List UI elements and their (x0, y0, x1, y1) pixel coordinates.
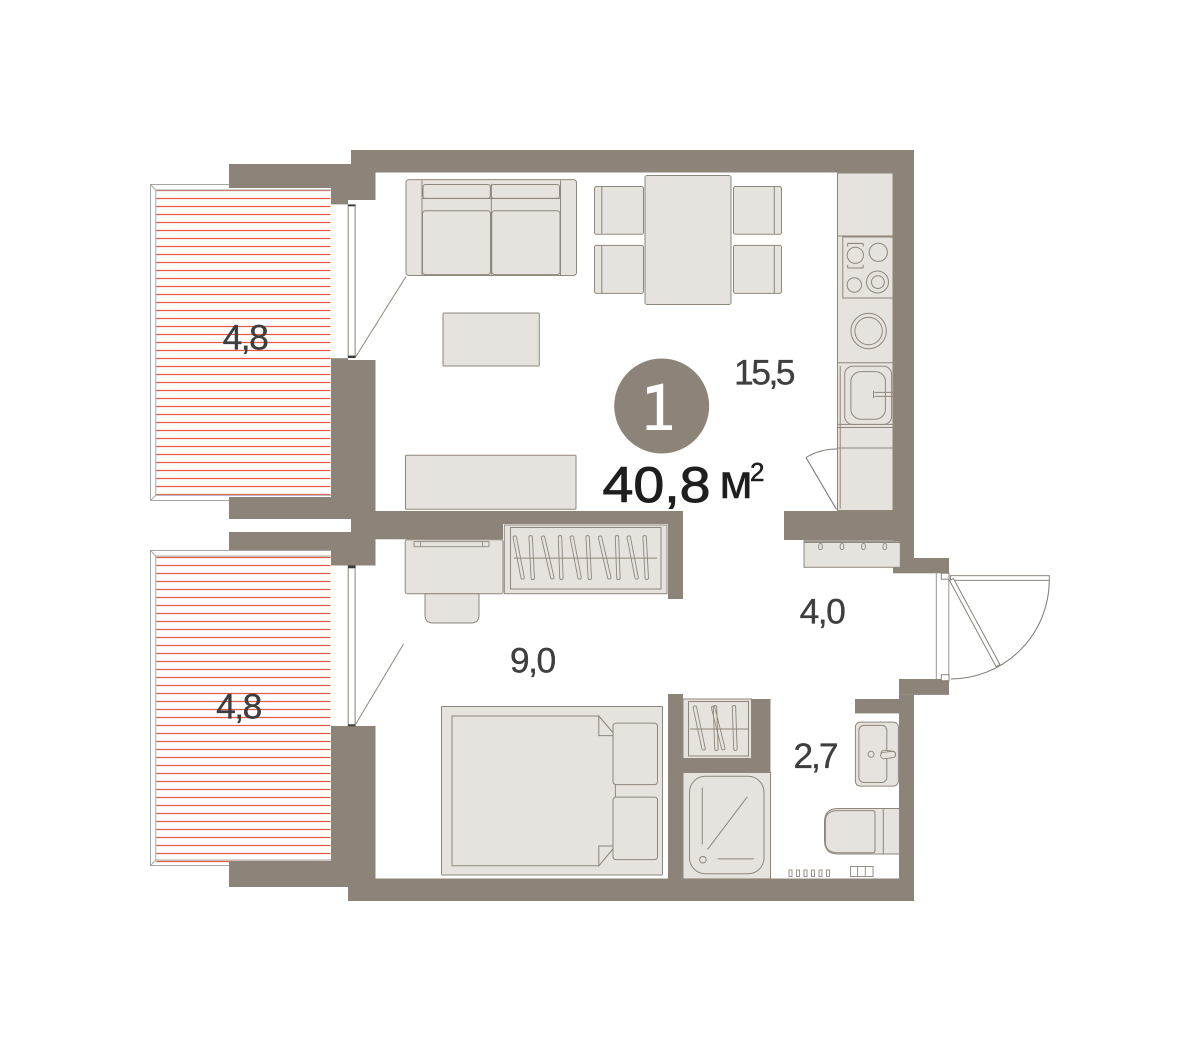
svg-text:4,0: 4,0 (800, 592, 846, 632)
svg-text:2: 2 (750, 457, 764, 487)
svg-text:40,8: 40,8 (603, 457, 711, 513)
svg-text:4,8: 4,8 (216, 687, 262, 727)
svg-text:м: м (720, 456, 753, 509)
svg-text:4,8: 4,8 (223, 318, 269, 358)
svg-text:15,5: 15,5 (734, 353, 795, 393)
svg-text:2,7: 2,7 (793, 736, 837, 776)
svg-text:9,0: 9,0 (510, 641, 556, 681)
